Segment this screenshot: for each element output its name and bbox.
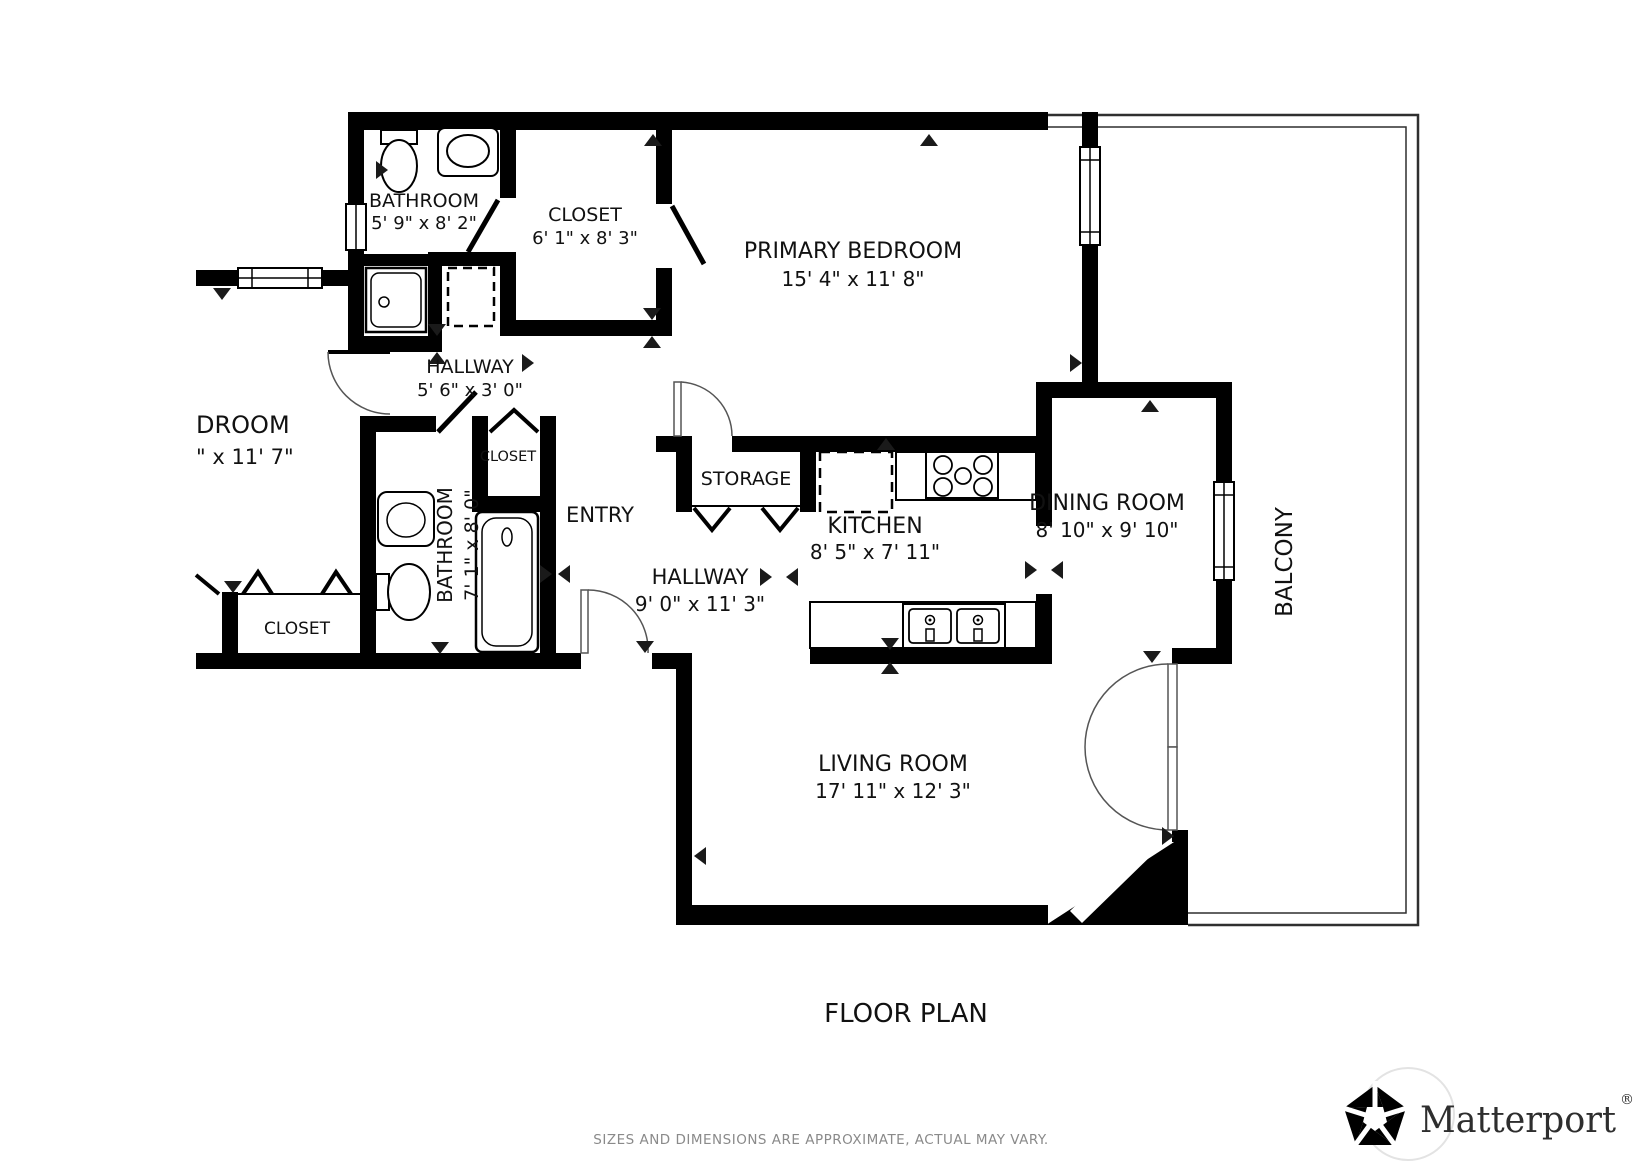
room-label-closet-bottom-left: CLOSET [264,619,331,639]
arrow-down-icon [431,642,449,654]
arrow-down-icon [224,581,242,593]
fireplace [1046,833,1188,925]
svg-text:9' 0" x 11' 3": 9' 0" x 11' 3" [635,592,765,616]
sink-bathroom-top [438,128,498,176]
registered-mark: ® [1620,1092,1634,1108]
matterport-wordmark: Matterport [1420,1100,1617,1141]
arrow-left-icon [786,568,798,586]
stove [926,452,998,498]
svg-text:CLOSET: CLOSET [264,619,331,639]
arrow-left-icon [694,847,706,865]
room-label-kitchen: KITCHEN 8' 5" x 7' 11" [810,514,940,564]
sink-bathroom-lower [378,492,434,546]
door-primary-bedroom [674,382,732,436]
window-left-bedroom [238,268,322,288]
room-label-bathroom-lower: BATHROOM 7' 1" x 8' 0" [433,487,483,603]
room-label-hallway-lower: HALLWAY 9' 0" x 11' 3" [635,565,765,616]
bifold-storage [692,506,800,530]
svg-text:15' 4" x 11' 8": 15' 4" x 11' 8" [781,267,924,291]
svg-text:LIVING ROOM: LIVING ROOM [818,752,968,777]
refrigerator-dashed [820,452,892,512]
toilet-bathroom-lower [376,564,430,620]
svg-text:5' 6" x 3' 0": 5' 6" x 3' 0" [417,380,523,401]
room-label-closet-top: CLOSET 6' 1" x 8' 3" [532,204,638,249]
svg-text:DINING ROOM: DINING ROOM [1029,491,1185,516]
svg-text:HALLWAY: HALLWAY [652,565,749,589]
svg-text:5' 9" x 8' 2": 5' 9" x 8' 2" [371,213,477,234]
door-french-doors [1085,664,1177,830]
bathtub [476,512,538,652]
bifold-closet-bottom-left [196,572,360,594]
svg-text:8' 5" x 7' 11": 8' 5" x 7' 11" [810,540,940,564]
svg-text:BALCONY: BALCONY [1272,506,1298,617]
room-label-hallway-upper: HALLWAY 5' 6" x 3' 0" [417,356,523,401]
room-label-primary-bedroom: PRIMARY BEDROOM 15' 4" x 11' 8" [744,239,962,291]
room-label-bathroom-top: BATHROOM 5' 9" x 8' 2" [369,190,479,234]
page-title: FLOOR PLAN [824,999,988,1029]
appliance-dashed-top [448,268,494,326]
kitchen-sink [903,604,1005,648]
window-dining-room [1214,482,1234,580]
room-label-bedroom-partial: DROOM " x 11' 7" [196,411,294,469]
svg-text:8' 10" x 9' 10": 8' 10" x 9' 10" [1035,518,1178,542]
svg-text:KITCHEN: KITCHEN [827,514,922,539]
matterport-icon [1340,1081,1410,1148]
svg-text:CLOSET: CLOSET [548,204,622,226]
shower [366,268,426,332]
arrow-down-icon [213,288,231,300]
floor-plan-drawing: BATHROOM 5' 9" x 8' 2" CLOSET 6' 1" x 8'… [0,0,1647,1164]
window-primary-bedroom [1080,147,1100,245]
arrow-down-icon [636,641,654,653]
room-label-living-room: LIVING ROOM 17' 11" x 12' 3" [815,752,971,803]
floor-plan-page: BATHROOM 5' 9" x 8' 2" CLOSET 6' 1" x 8'… [0,0,1647,1164]
svg-text:STORAGE: STORAGE [701,468,791,490]
arrow-left-icon [558,565,570,583]
svg-text:BATHROOM: BATHROOM [369,190,479,212]
arrow-right-icon [760,568,772,586]
arrow-right-icon [522,354,534,372]
arrow-left-icon [1051,561,1063,579]
svg-text:DROOM: DROOM [196,411,290,439]
door-left-bedroom [328,352,390,414]
svg-text:6' 1" x 8' 3": 6' 1" x 8' 3" [532,228,638,249]
disclaimer-text: SIZES AND DIMENSIONS ARE APPROXIMATE, AC… [593,1132,1048,1148]
room-label-closet-small: CLOSET [480,449,536,465]
room-label-dining-room: DINING ROOM 8' 10" x 9' 10" [1029,491,1185,542]
arrow-up-icon [1141,400,1159,412]
svg-text:BATHROOM: BATHROOM [433,487,457,603]
svg-text:HALLWAY: HALLWAY [426,356,514,378]
svg-text:17' 11" x 12' 3": 17' 11" x 12' 3" [815,779,971,803]
arrow-right-icon [1025,561,1037,579]
svg-text:ENTRY: ENTRY [566,503,634,527]
room-label-entry: ENTRY [566,503,634,527]
arrow-up-icon [920,134,938,146]
svg-text:PRIMARY BEDROOM: PRIMARY BEDROOM [744,239,962,264]
room-label-balcony: BALCONY [1272,506,1298,617]
toilet-bathroom-top [381,130,417,192]
matterport-logo: Matterport ® [1340,1068,1634,1160]
room-label-storage: STORAGE [701,468,791,490]
svg-text:7' 1" x 8' 0": 7' 1" x 8' 0" [461,489,483,601]
arrow-up-icon [643,336,661,348]
svg-text:" x 11' 7": " x 11' 7" [196,445,294,469]
bifold-closet-small [490,410,538,432]
arrow-right-icon [1070,354,1082,372]
svg-text:CLOSET: CLOSET [480,449,536,465]
door-closet-top [672,206,704,264]
arrow-down-icon [1143,651,1161,663]
window-bathroom-top [346,204,366,250]
